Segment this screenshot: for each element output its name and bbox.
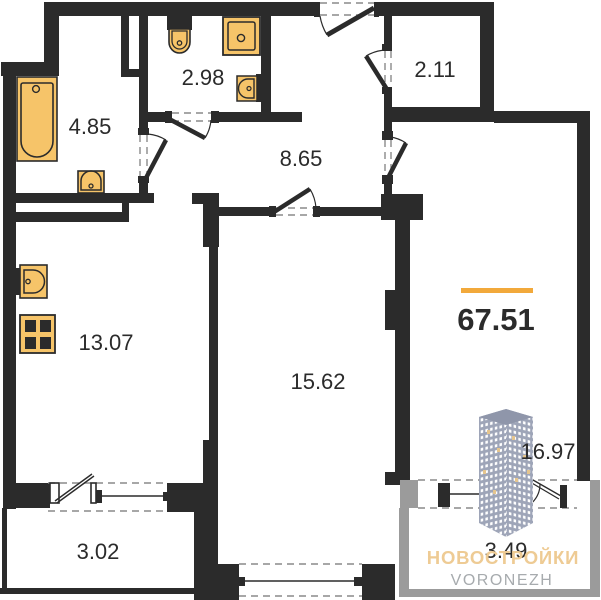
svg-text:3.02: 3.02: [77, 539, 120, 564]
svg-text:16.97: 16.97: [520, 439, 575, 464]
svg-text:8.65: 8.65: [280, 146, 323, 171]
svg-text:2.11: 2.11: [414, 57, 455, 82]
svg-text:НОВОСТРОЙКИ: НОВОСТРОЙКИ: [427, 547, 579, 568]
svg-text:13.07: 13.07: [78, 330, 133, 355]
svg-text:15.62: 15.62: [290, 369, 345, 394]
svg-text:2.98: 2.98: [182, 65, 225, 90]
svg-text:VORONEZH: VORONEZH: [451, 572, 554, 589]
svg-text:67.51: 67.51: [457, 302, 535, 337]
svg-text:4.85: 4.85: [69, 114, 112, 139]
